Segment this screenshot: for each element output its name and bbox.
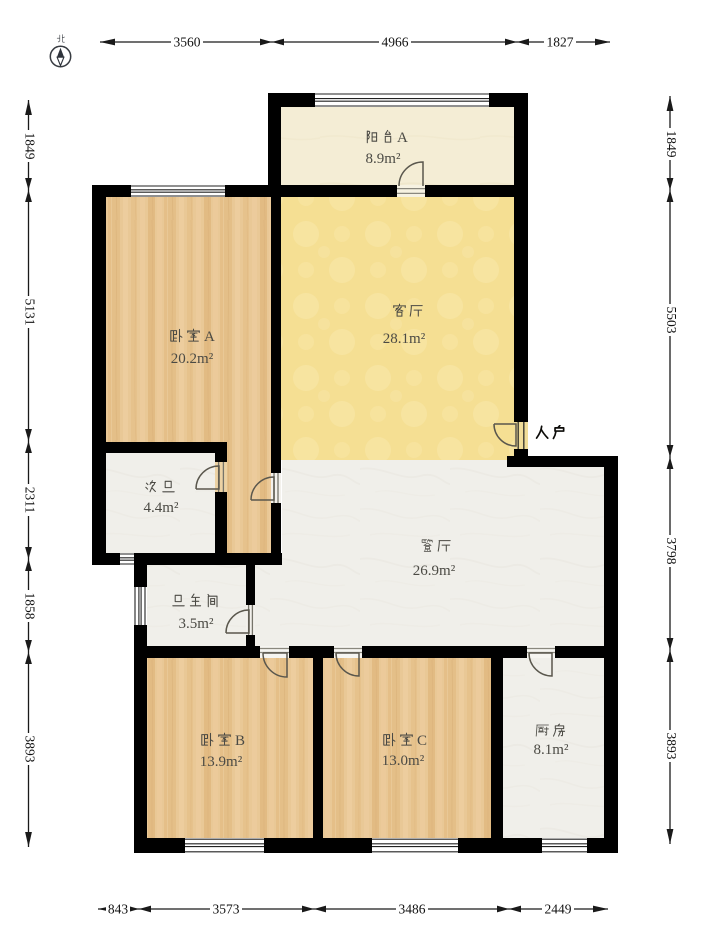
svg-text:1858: 1858 [22, 593, 37, 620]
svg-text:8.1m²: 8.1m² [534, 742, 569, 758]
svg-text:13.0m²: 13.0m² [382, 753, 425, 769]
svg-text:13.9m²: 13.9m² [200, 754, 243, 770]
svg-text:3893: 3893 [664, 733, 679, 760]
svg-text:3893: 3893 [22, 736, 37, 763]
svg-text:843: 843 [108, 902, 129, 917]
svg-text:4.4m²: 4.4m² [144, 500, 179, 516]
svg-text:1849: 1849 [22, 133, 37, 160]
svg-text:20.2m²: 20.2m² [171, 351, 214, 367]
svg-text:C: C [417, 733, 427, 749]
svg-text:2311: 2311 [22, 487, 37, 514]
svg-text:4966: 4966 [382, 35, 409, 50]
svg-text:3573: 3573 [213, 902, 240, 917]
svg-text:3560: 3560 [174, 35, 201, 50]
svg-text:5503: 5503 [664, 307, 679, 334]
svg-text:1827: 1827 [547, 35, 574, 50]
svg-text:A: A [397, 130, 408, 146]
svg-text:2449: 2449 [545, 902, 572, 917]
svg-text:3.5m²: 3.5m² [179, 616, 214, 632]
svg-text:A: A [204, 329, 215, 345]
svg-text:B: B [235, 733, 245, 749]
svg-text:3798: 3798 [664, 538, 679, 565]
svg-text:5131: 5131 [22, 299, 37, 326]
svg-text:1849: 1849 [664, 131, 679, 158]
svg-text:28.1m²: 28.1m² [383, 331, 426, 347]
svg-text:8.9m²: 8.9m² [366, 151, 401, 167]
svg-text:3486: 3486 [399, 902, 426, 917]
svg-text:26.9m²: 26.9m² [413, 563, 456, 579]
